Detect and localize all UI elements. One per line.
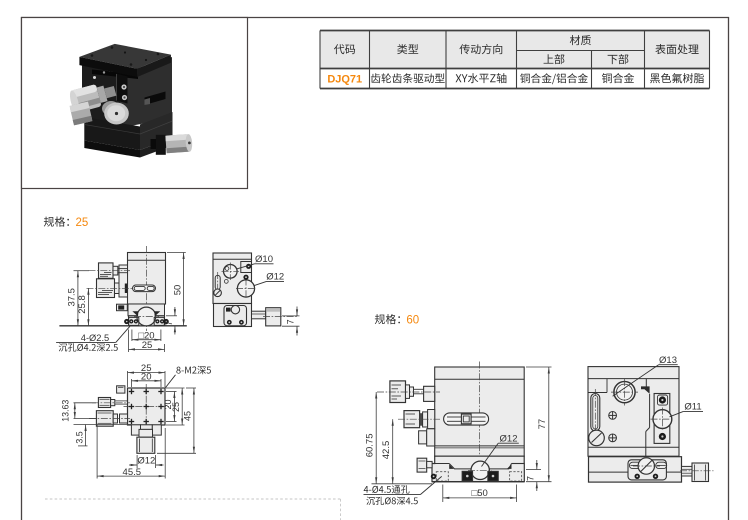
- svg-text:3.5: 3.5: [74, 431, 84, 443]
- svg-text:60: 60: [406, 314, 419, 326]
- svg-text:Ø12: Ø12: [500, 433, 518, 444]
- svg-text:7: 7: [526, 476, 536, 481]
- svg-text:7: 7: [286, 319, 296, 324]
- svg-text:60.75: 60.75: [365, 434, 376, 458]
- svg-text:Ø13: Ø13: [659, 355, 677, 366]
- svg-text:DJQ71: DJQ71: [327, 73, 362, 85]
- svg-text:45.5: 45.5: [123, 467, 142, 478]
- svg-text:Ø12: Ø12: [137, 455, 155, 466]
- svg-text:Ø10: Ø10: [255, 254, 273, 265]
- svg-text:25.8: 25.8: [77, 295, 88, 314]
- svg-text:37.5: 37.5: [67, 288, 78, 307]
- svg-text:50: 50: [172, 285, 183, 296]
- svg-text:□50: □50: [472, 488, 488, 499]
- svg-text:13.63: 13.63: [60, 400, 70, 422]
- svg-text:4-Ø2.5: 4-Ø2.5: [81, 333, 109, 343]
- svg-text:25: 25: [76, 217, 89, 229]
- svg-text:42.5: 42.5: [381, 441, 392, 460]
- svg-text:45: 45: [183, 411, 193, 421]
- svg-text:Ø11: Ø11: [684, 402, 701, 413]
- svg-text:25: 25: [142, 340, 153, 351]
- svg-text:Ø12: Ø12: [266, 272, 284, 283]
- svg-text:20: 20: [141, 371, 152, 382]
- svg-text:77: 77: [537, 419, 548, 430]
- svg-text:7: 7: [164, 321, 174, 326]
- svg-text:25: 25: [171, 402, 181, 412]
